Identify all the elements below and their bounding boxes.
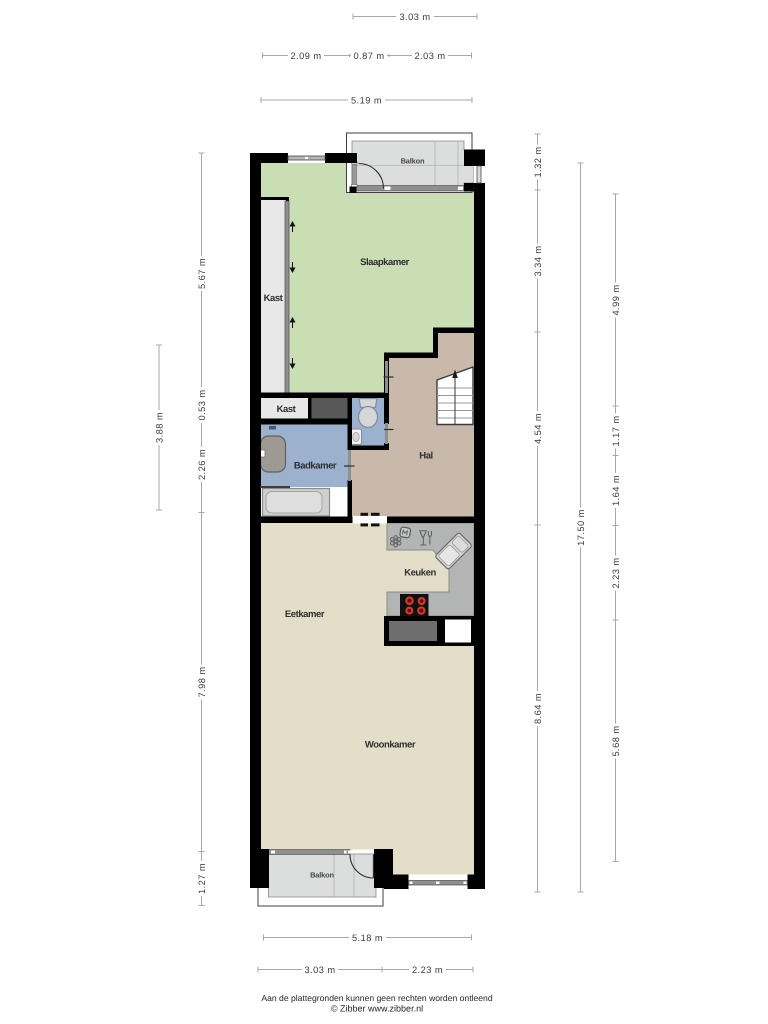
svg-text:Balkon: Balkon xyxy=(401,157,425,166)
svg-text:4.99 m: 4.99 m xyxy=(611,284,621,315)
svg-text:2.26 m: 2.26 m xyxy=(197,449,207,480)
svg-text:2.09 m: 2.09 m xyxy=(290,51,321,61)
svg-text:5.68 m: 5.68 m xyxy=(611,725,621,756)
svg-text:1.32 m: 1.32 m xyxy=(533,146,543,177)
svg-text:5.19 m: 5.19 m xyxy=(351,96,382,106)
svg-text:1.17 m: 1.17 m xyxy=(611,415,621,446)
svg-text:Woonkamer: Woonkamer xyxy=(365,740,416,751)
svg-text:Aan de plattegronden kunnen ge: Aan de plattegronden kunnen geen rechten… xyxy=(261,993,492,1003)
svg-text:© Zibber www.zibber.nl: © Zibber www.zibber.nl xyxy=(331,1004,423,1014)
svg-text:1.27 m: 1.27 m xyxy=(197,863,207,894)
svg-text:Eetkamer: Eetkamer xyxy=(285,609,325,620)
svg-text:5.18 m: 5.18 m xyxy=(352,933,383,943)
svg-text:1.64 m: 1.64 m xyxy=(611,475,621,506)
svg-text:2.23 m: 2.23 m xyxy=(412,965,443,975)
svg-text:4.54 m: 4.54 m xyxy=(533,413,543,444)
svg-text:5.67 m: 5.67 m xyxy=(197,258,207,289)
svg-text:17.50 m: 17.50 m xyxy=(576,509,586,546)
svg-text:0.53 m: 0.53 m xyxy=(197,389,207,420)
svg-text:3.03 m: 3.03 m xyxy=(399,12,430,22)
svg-text:3.88 m: 3.88 m xyxy=(155,412,165,443)
svg-text:Kast: Kast xyxy=(264,293,284,304)
svg-text:2.03 m: 2.03 m xyxy=(414,51,445,61)
svg-text:Hal: Hal xyxy=(419,451,432,462)
svg-text:3.34 m: 3.34 m xyxy=(533,245,543,276)
svg-text:2.23 m: 2.23 m xyxy=(611,557,621,588)
svg-text:Badkamer: Badkamer xyxy=(294,461,337,472)
svg-text:Kast: Kast xyxy=(277,404,297,415)
svg-text:7.98 m: 7.98 m xyxy=(197,666,207,697)
svg-text:Slaapkamer: Slaapkamer xyxy=(360,257,410,268)
svg-text:Balkon: Balkon xyxy=(310,871,334,880)
svg-text:8.64 m: 8.64 m xyxy=(533,693,543,724)
svg-text:3.03 m: 3.03 m xyxy=(304,965,335,975)
svg-text:Keuken: Keuken xyxy=(404,568,436,579)
svg-text:0.87 m: 0.87 m xyxy=(353,51,384,61)
